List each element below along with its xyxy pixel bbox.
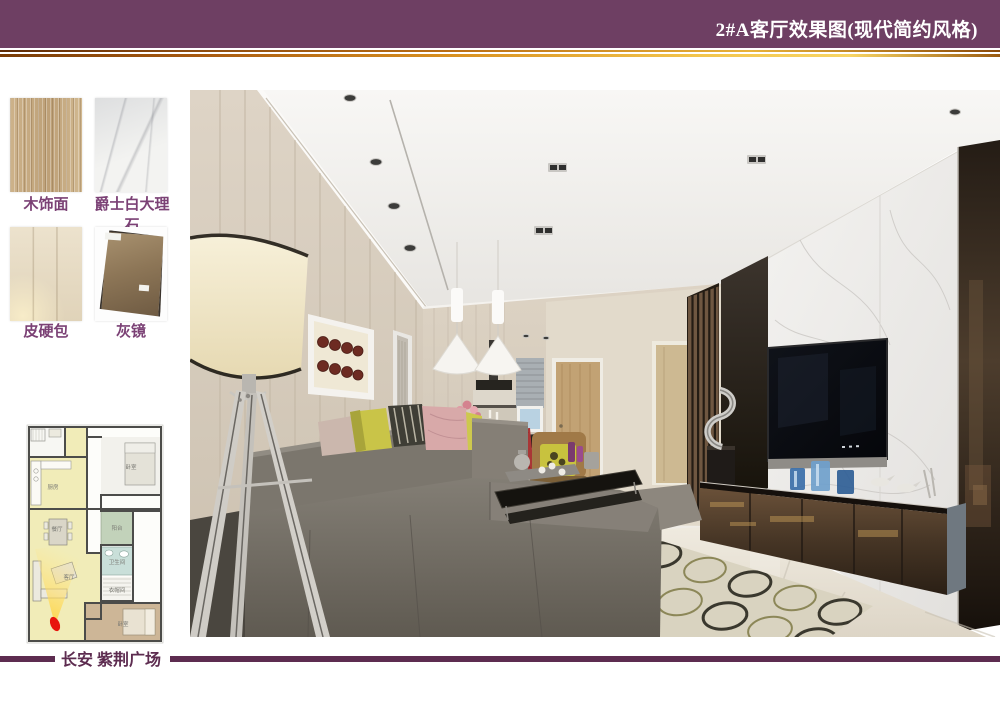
plan-room-label: 阳台 — [111, 524, 123, 532]
material-label: 皮硬包 — [1, 320, 91, 341]
footer-bar-right — [170, 656, 1000, 662]
header-bar: 2#A客厅效果图(现代简约风格) — [0, 0, 1000, 48]
material-label: 灰镜 — [86, 320, 176, 341]
floor-plan: 厨房 餐厅 客厅 卧室 阳台 卫生间 衣帽间 卧室 — [25, 423, 165, 645]
footer-bar-left — [0, 656, 55, 662]
mirror-sticker — [105, 232, 121, 240]
material-label: 木饰面 — [1, 193, 91, 214]
plan-room-label: 餐厅 — [51, 525, 63, 533]
material-swatch-wood-veneer — [10, 98, 82, 192]
mirror-sticker — [139, 285, 149, 292]
tv — [768, 339, 887, 469]
plan-room-label: 卧室 — [117, 620, 129, 628]
presentation-board: 2#A客厅效果图(现代简约风格) 木饰面 爵士白大理石 皮硬包 灰镜 — [0, 0, 1000, 707]
plan-room-label: 卧室 — [125, 463, 137, 471]
gold-divider-line-thin — [0, 50, 1000, 52]
plan-room-label: 卫生间 — [109, 558, 126, 566]
project-name: 长安 紫荆广场 — [52, 646, 170, 670]
plan-room-label: 厨房 — [47, 483, 59, 491]
gold-divider-line-thick — [0, 54, 1000, 58]
mirror-glass — [99, 230, 166, 320]
plan-room-label: 客厅 — [63, 573, 75, 581]
material-swatch-grey-mirror — [95, 227, 167, 321]
material-swatch-leather-panel — [10, 227, 82, 321]
page-title: 2#A客厅效果图(现代简约风格) — [716, 7, 1000, 42]
material-swatch-marble — [95, 98, 167, 192]
plan-room-label: 衣帽间 — [109, 586, 126, 594]
hallway-door — [652, 341, 690, 485]
living-room-render — [190, 90, 1000, 637]
